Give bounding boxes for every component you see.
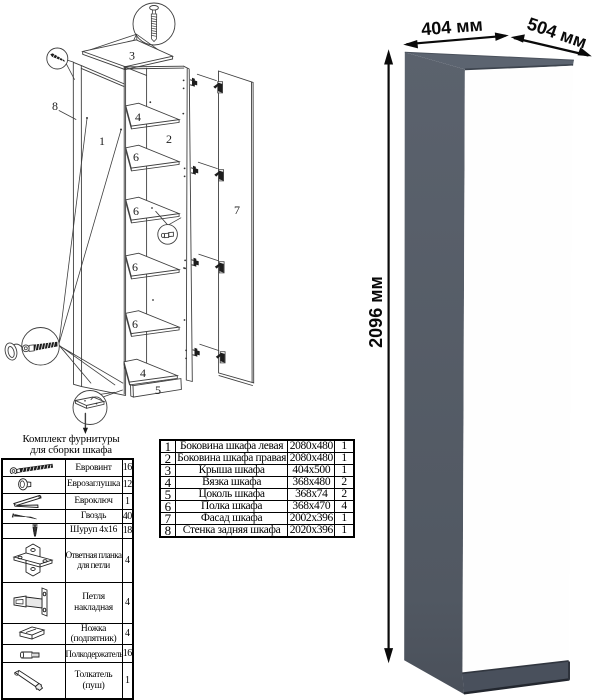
svg-text:1: 1 — [99, 134, 105, 148]
svg-text:5: 5 — [155, 383, 161, 397]
svg-text:6: 6 — [132, 317, 138, 331]
svg-text:404 мм: 404 мм — [420, 15, 483, 40]
svg-text:8: 8 — [52, 99, 58, 113]
svg-text:4: 4 — [135, 110, 141, 124]
svg-text:6: 6 — [132, 260, 138, 274]
svg-text:6: 6 — [133, 204, 139, 218]
svg-text:6: 6 — [133, 150, 139, 164]
svg-text:2096 мм: 2096 мм — [366, 276, 386, 348]
svg-text:504 мм: 504 мм — [525, 14, 590, 53]
svg-text:3: 3 — [129, 49, 135, 63]
svg-text:4: 4 — [140, 366, 146, 380]
svg-text:2: 2 — [166, 132, 172, 146]
svg-text:7: 7 — [234, 203, 240, 217]
